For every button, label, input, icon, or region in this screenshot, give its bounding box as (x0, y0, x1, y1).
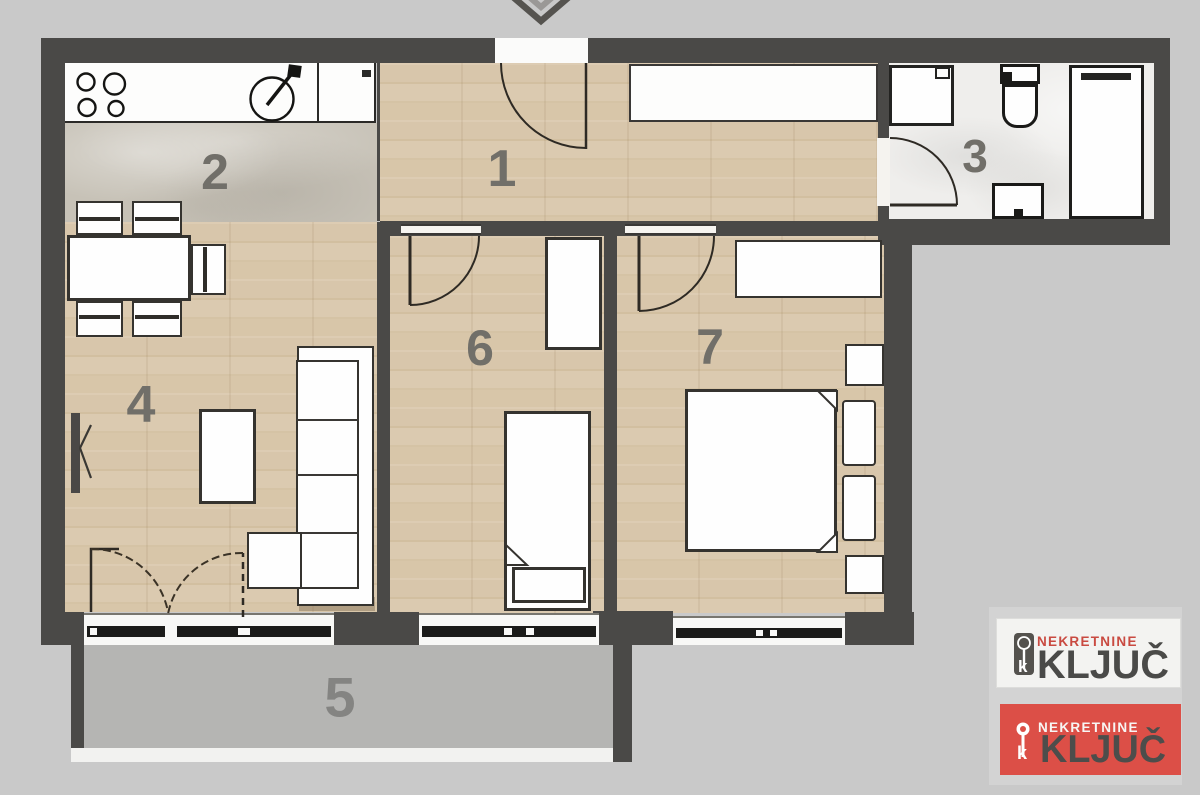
svg-text:k: k (1017, 743, 1028, 762)
svg-text:k: k (1018, 657, 1028, 675)
